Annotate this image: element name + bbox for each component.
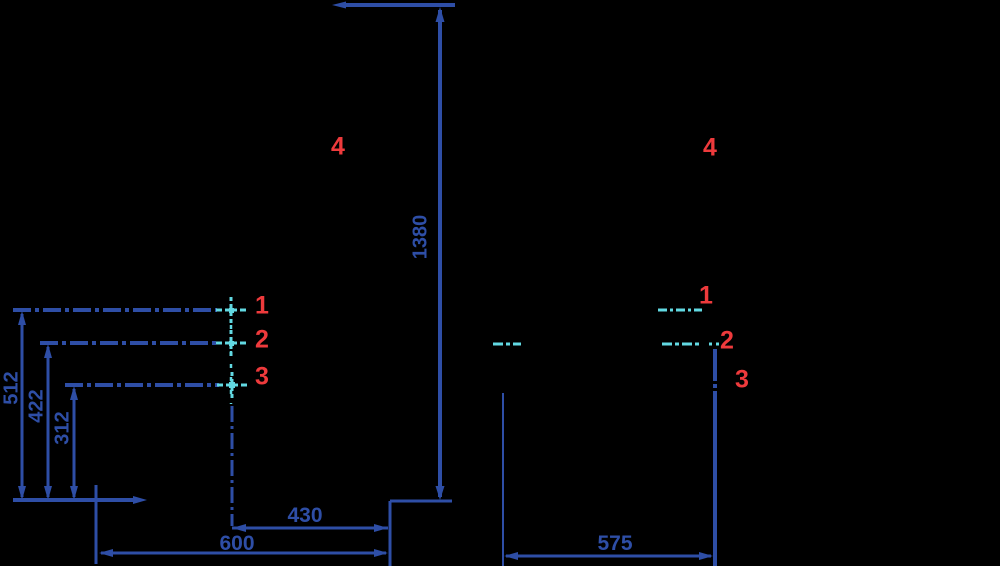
overall-height-dimension-line bbox=[436, 7, 445, 500]
callout-left-1: 1 bbox=[255, 292, 269, 321]
arrow-right-icon bbox=[374, 549, 388, 557]
callout-left-3: 3 bbox=[255, 363, 269, 392]
arrow-down-icon bbox=[436, 486, 445, 500]
callout-right-2: 2 bbox=[720, 327, 734, 356]
arrow-up-icon bbox=[44, 344, 52, 358]
dim-label-600: 600 bbox=[219, 532, 254, 556]
drawing-lines bbox=[0, 0, 1000, 566]
dim-label-512: 512 bbox=[1, 371, 24, 404]
arrow-left-icon bbox=[504, 552, 518, 560]
arrow-left-icon bbox=[99, 549, 113, 557]
top-reference-line bbox=[332, 2, 455, 9]
callout-right-4: 4 bbox=[703, 134, 717, 163]
arrow-down-icon bbox=[44, 486, 52, 500]
callout-left-2: 2 bbox=[255, 326, 269, 355]
arrow-up-icon bbox=[18, 311, 26, 325]
baseline bbox=[13, 496, 147, 504]
arrow-left-icon bbox=[232, 524, 246, 532]
dim-label-overall-height: 1380 bbox=[410, 215, 433, 260]
callout-right-3: 3 bbox=[735, 366, 749, 395]
callout-right-1: 1 bbox=[699, 282, 713, 311]
dim-label-430: 430 bbox=[287, 504, 322, 528]
technical-drawing: 1380 512 422 312 600 430 1 2 3 4 575 1 2… bbox=[0, 0, 1000, 566]
arrow-up-icon bbox=[436, 7, 445, 22]
arrow-right-icon bbox=[133, 496, 147, 504]
arrow-right-icon bbox=[699, 552, 713, 560]
arrow-right-icon bbox=[374, 524, 388, 532]
callout-left-4: 4 bbox=[331, 133, 345, 162]
center-mark-1-icon bbox=[216, 297, 246, 323]
center-mark-3-icon bbox=[217, 372, 247, 398]
dim-label-422: 422 bbox=[26, 389, 49, 422]
arrow-down-icon bbox=[70, 486, 78, 500]
dim-label-575: 575 bbox=[597, 532, 632, 556]
base-step-outline bbox=[390, 501, 452, 566]
arrow-down-icon bbox=[18, 486, 26, 500]
dim-label-312: 312 bbox=[52, 411, 75, 444]
arrow-up-icon bbox=[70, 386, 78, 400]
